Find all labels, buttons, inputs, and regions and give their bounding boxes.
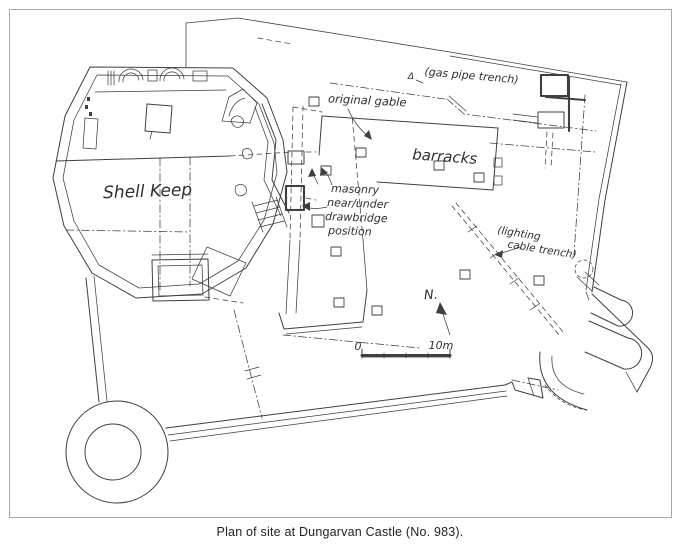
masonry-blob bbox=[87, 97, 90, 101]
masonry-label-line4: position bbox=[327, 224, 372, 239]
gas-pipe-marker: Δ bbox=[407, 72, 415, 82]
masonry-label-line2: near/under bbox=[327, 196, 390, 211]
plan-frame bbox=[10, 10, 672, 518]
scale-zero-label: 0 bbox=[355, 340, 362, 353]
scale-ten-label: 10m bbox=[429, 339, 454, 352]
north-label: N. bbox=[424, 287, 439, 303]
masonry-label-line3: drawbridge bbox=[325, 210, 388, 225]
masonry-blob bbox=[85, 105, 88, 109]
site-plan-svg: Shell Keep barracks original gable Δ (ga… bbox=[0, 0, 680, 551]
figure-caption: Plan of site at Dungarvan Castle (No. 98… bbox=[0, 525, 680, 539]
masonry-label-line1: masonry bbox=[331, 182, 380, 197]
masonry-blob bbox=[89, 112, 92, 116]
figure-page: Shell Keep barracks original gable Δ (ga… bbox=[0, 0, 680, 551]
shell-keep-label: Shell Keep bbox=[103, 180, 193, 203]
